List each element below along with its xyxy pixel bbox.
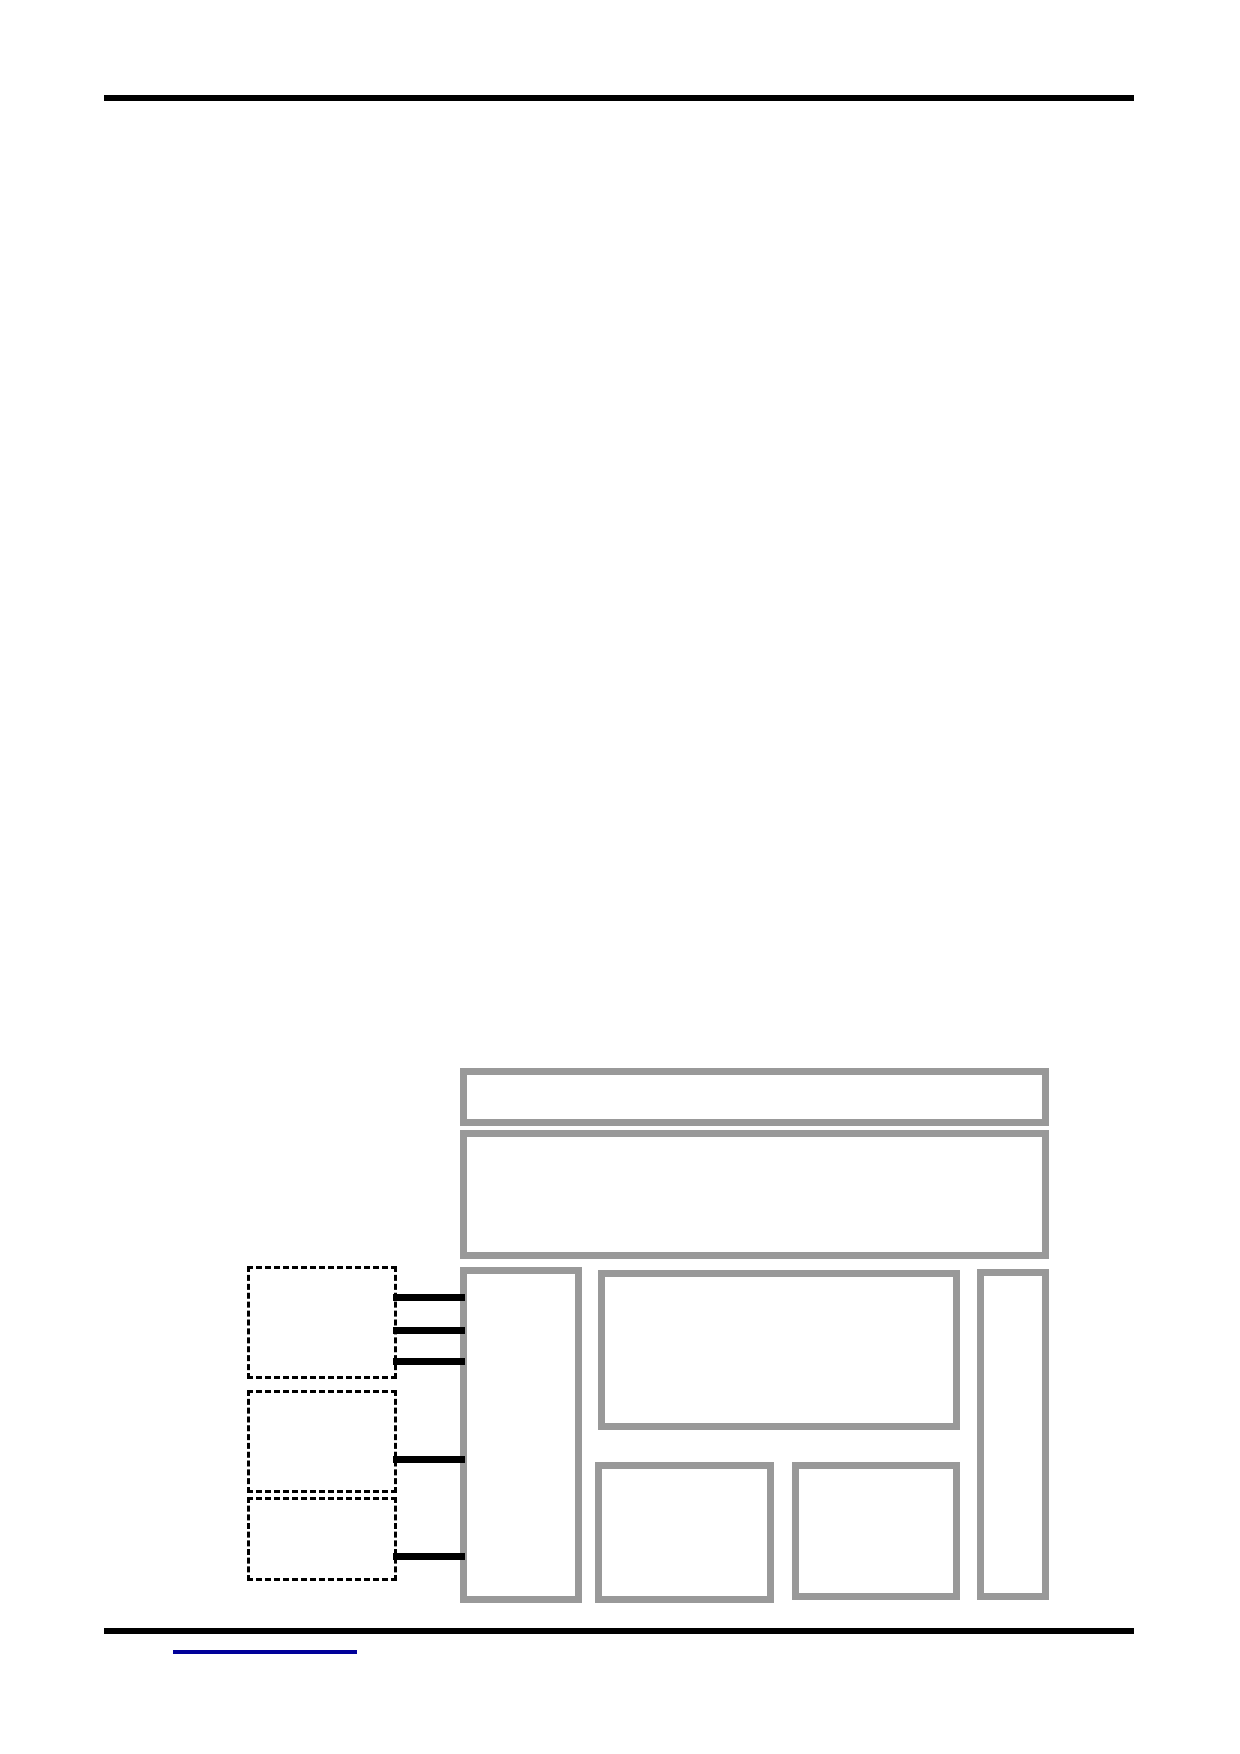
figure-dashed-callout-2 [247, 1390, 397, 1493]
figure-box-top-bar [460, 1068, 1049, 1126]
document-page [0, 0, 1240, 1754]
connector-line-4 [393, 1456, 465, 1463]
figure-box-bottom-right-panel [792, 1462, 960, 1600]
figure-box-left-column [460, 1267, 582, 1603]
figure-box-main-panel [598, 1270, 960, 1430]
footer-link[interactable] [173, 1634, 357, 1654]
connector-line-1 [393, 1294, 465, 1301]
header-rule [104, 95, 1134, 101]
figure-box-bottom-left-panel [595, 1462, 774, 1603]
figure-box-header-panel [460, 1130, 1049, 1259]
connector-line-2 [393, 1327, 465, 1334]
connector-line-5 [393, 1553, 465, 1560]
figure-dashed-callout-3 [247, 1497, 397, 1581]
figure-dashed-callout-1 [247, 1266, 397, 1379]
connector-line-3 [393, 1358, 465, 1365]
figure-box-right-column [977, 1269, 1049, 1600]
